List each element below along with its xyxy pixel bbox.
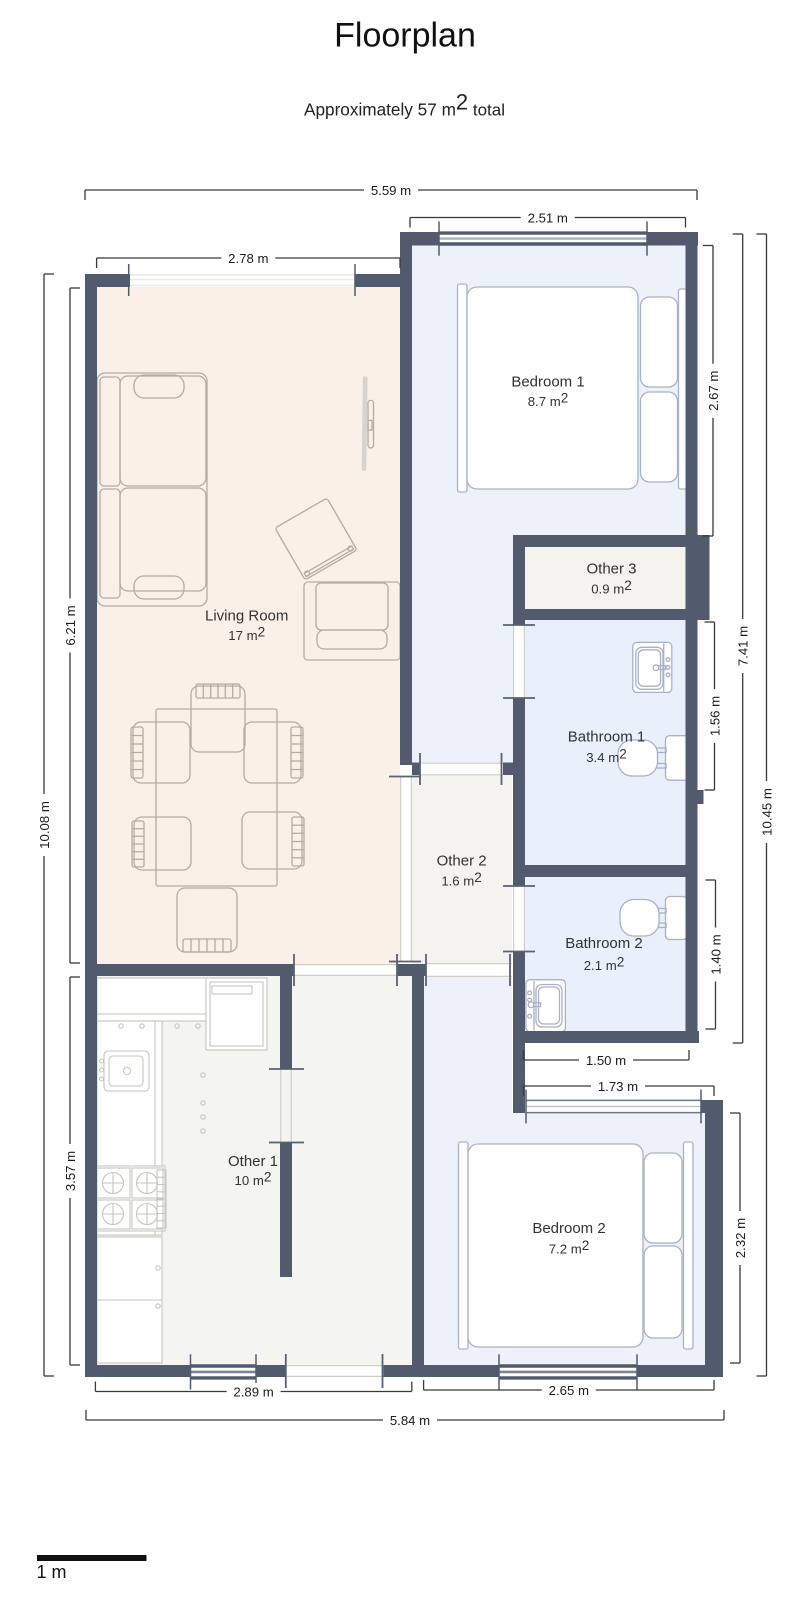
svg-text:Other 2: Other 2 [437,853,487,870]
svg-text:10.45 m: 10.45 m [759,788,774,836]
svg-text:5.59 m: 5.59 m [371,183,411,198]
svg-text:Approximately 57 m2 total: Approximately 57 m2 total [304,90,505,120]
svg-text:2.32 m: 2.32 m [733,1218,748,1258]
svg-text:3.57 m: 3.57 m [63,1151,78,1191]
svg-text:7.41 m: 7.41 m [736,626,751,666]
svg-text:2.67 m: 2.67 m [706,371,721,411]
svg-text:6.21 m: 6.21 m [63,605,78,645]
svg-text:Bathroom 2: Bathroom 2 [565,935,643,952]
svg-text:Floorplan: Floorplan [334,17,476,55]
svg-text:1 m: 1 m [37,1562,67,1582]
svg-text:Bedroom 1: Bedroom 1 [511,374,584,391]
svg-text:1.50 m: 1.50 m [586,1053,626,1068]
svg-text:2.78 m: 2.78 m [228,251,268,266]
svg-text:Other 1: Other 1 [228,1153,278,1170]
svg-text:2.51 m: 2.51 m [528,210,568,225]
svg-text:Other 3: Other 3 [586,560,636,577]
svg-text:Bedroom 2: Bedroom 2 [532,1220,605,1237]
svg-text:2.65 m: 2.65 m [549,1383,589,1398]
svg-text:1.40 m: 1.40 m [708,934,723,974]
svg-text:1.73 m: 1.73 m [598,1079,638,1094]
svg-text:1.56 m: 1.56 m [707,696,722,736]
svg-text:Bathroom 1: Bathroom 1 [568,729,646,746]
svg-text:2.89 m: 2.89 m [233,1384,273,1399]
svg-text:10.08 m: 10.08 m [37,801,52,849]
svg-text:Living Room: Living Room [205,608,288,625]
svg-text:5.84 m: 5.84 m [390,1413,430,1428]
